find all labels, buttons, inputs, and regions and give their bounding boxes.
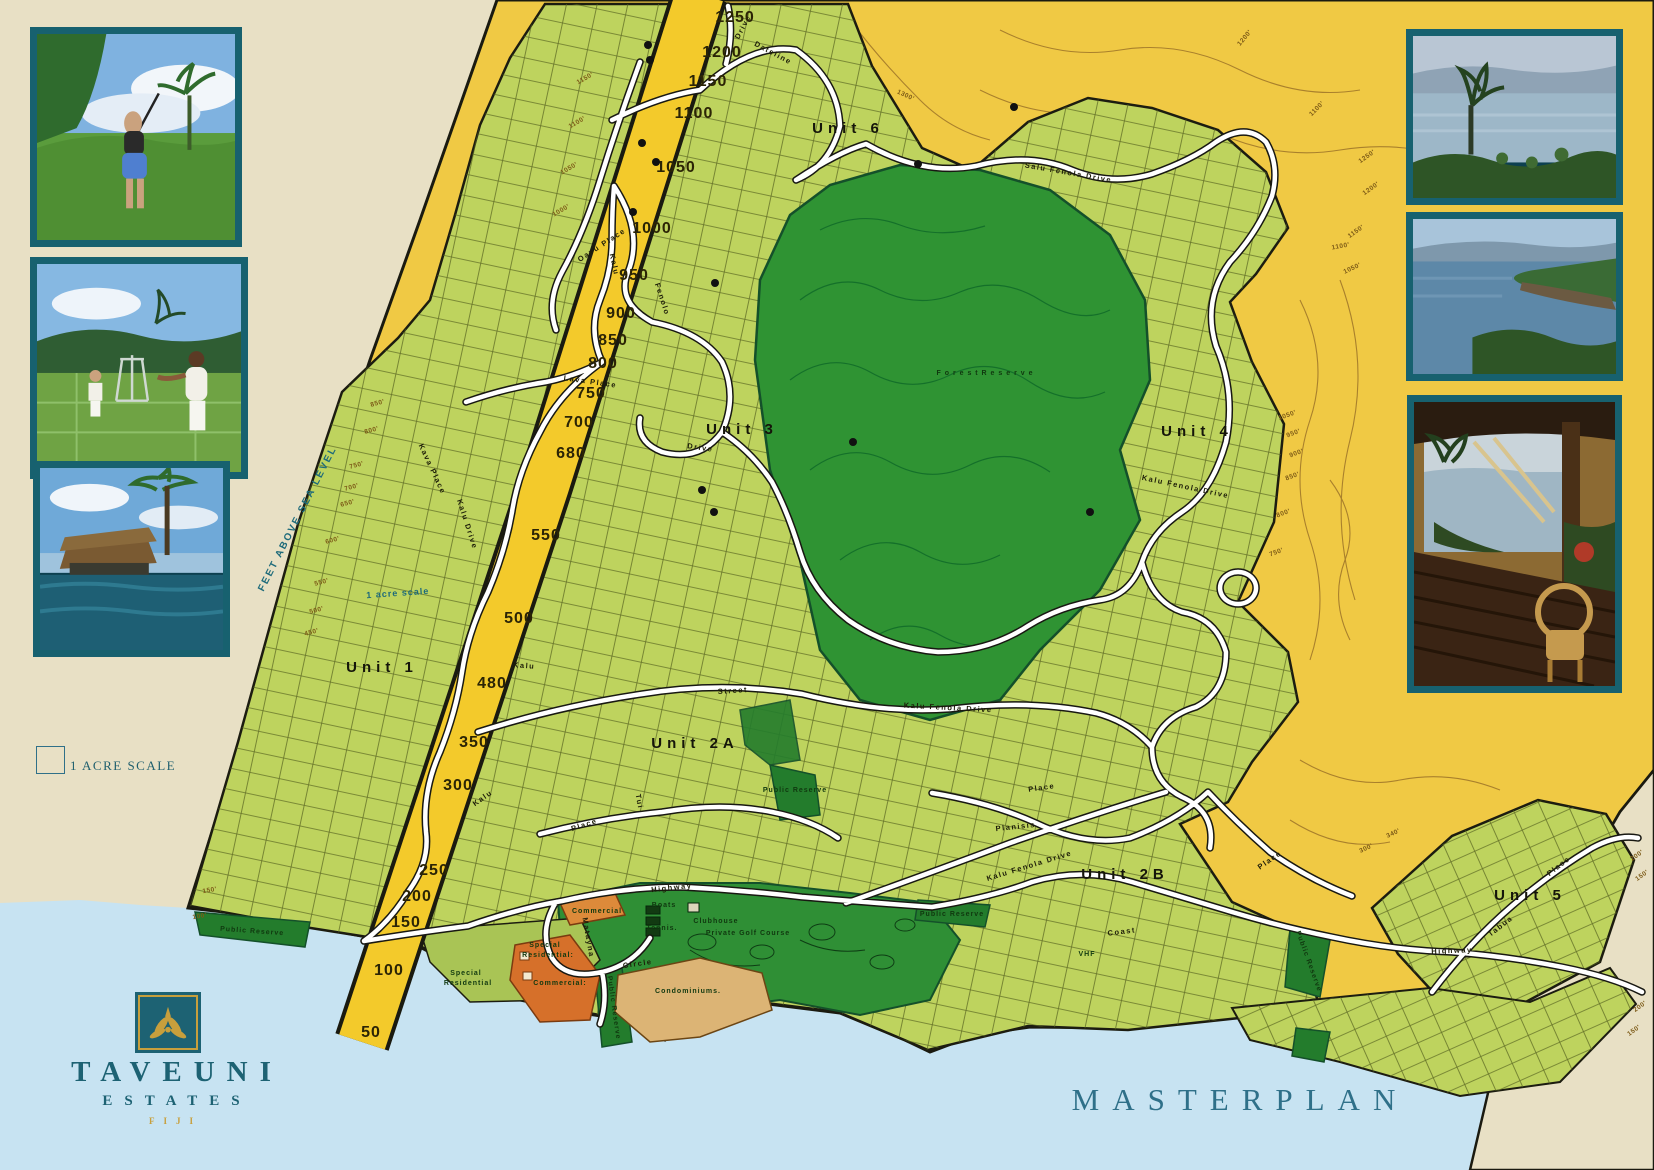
bay-photo	[1406, 212, 1623, 381]
svg-text:Unit 6: Unit 6	[812, 120, 884, 137]
svg-text:Unit 2A: Unit 2A	[651, 735, 739, 752]
svg-text:50: 50	[361, 1024, 381, 1041]
svg-text:Residential: Residential	[444, 980, 492, 987]
svg-text:800: 800	[588, 355, 618, 372]
svg-text:480: 480	[477, 675, 507, 692]
svg-text:Unit 3: Unit 3	[706, 421, 778, 438]
svg-text:250: 250	[419, 862, 449, 879]
svg-text:300: 300	[443, 777, 473, 794]
tennis-photo	[30, 257, 248, 479]
svg-text:Boats: Boats	[652, 902, 676, 909]
svg-text:Special: Special	[529, 942, 561, 949]
svg-text:Special: Special	[450, 970, 482, 977]
svg-text:150: 150	[391, 914, 421, 931]
svg-text:1150: 1150	[689, 73, 728, 90]
svg-text:Public Reserve: Public Reserve	[920, 911, 984, 918]
svg-text:Unit 4: Unit 4	[1161, 423, 1233, 440]
svg-text:Residential:: Residential:	[522, 952, 574, 959]
ocean-palm-photo	[1406, 29, 1623, 205]
veranda-photo	[1407, 395, 1622, 693]
golf-photo	[30, 27, 242, 247]
masterplan-poster: Unit 1Unit 2AUnit 2BUnit 3Unit 4Unit 5Un…	[0, 0, 1654, 1170]
svg-text:200: 200	[402, 888, 432, 905]
svg-text:Unit 1: Unit 1	[346, 659, 418, 676]
svg-text:Unit 5: Unit 5	[1494, 887, 1566, 904]
svg-text:Commercial: Commercial	[572, 908, 622, 915]
svg-text:100: 100	[374, 962, 404, 979]
brand-subname: ESTATES	[40, 1093, 314, 1110]
svg-text:Unit 2B: Unit 2B	[1081, 866, 1169, 883]
svg-text:Clubhouse: Clubhouse	[693, 918, 738, 925]
pool-photo	[33, 461, 230, 657]
brand-country: FIJI	[40, 1116, 311, 1126]
acre-scale-swatch	[36, 746, 65, 774]
svg-text:Kalu: Kalu	[513, 660, 536, 671]
svg-text:1000: 1000	[632, 220, 672, 237]
palm-emblem-icon	[147, 1002, 189, 1044]
svg-text:680: 680	[556, 445, 586, 462]
svg-text:F o r e s t R e s e r v e: F o r e s t R e s e r v e	[937, 370, 1034, 377]
brand-wordmark: TAVEUNI ESTATES FIJI	[40, 1056, 302, 1126]
svg-text:1200: 1200	[702, 44, 742, 61]
svg-text:350: 350	[459, 734, 489, 751]
page-title: MASTERPLAN	[1020, 1082, 1460, 1118]
svg-text:Public Reserve: Public Reserve	[763, 787, 827, 794]
svg-text:1250: 1250	[715, 9, 755, 26]
acre-scale-label: 1 ACRE SCALE	[70, 758, 176, 774]
svg-text:500: 500	[504, 610, 534, 627]
svg-text:1050: 1050	[656, 159, 696, 176]
brand-name: TAVEUNI	[40, 1056, 314, 1089]
svg-text:Tennis.: Tennis.	[647, 925, 678, 932]
svg-text:1100: 1100	[675, 105, 714, 122]
svg-text:Highway: Highway	[1431, 945, 1473, 955]
svg-text:Commercial:: Commercial:	[533, 980, 586, 987]
svg-text:VHF: VHF	[1079, 951, 1096, 958]
svg-text:950: 950	[619, 267, 649, 284]
svg-text:550: 550	[531, 527, 561, 544]
svg-text:750: 750	[576, 385, 606, 402]
svg-text:Condominiums.: Condominiums.	[655, 988, 721, 995]
svg-text:900: 900	[606, 305, 636, 322]
svg-text:850: 850	[598, 332, 628, 349]
svg-text:700: 700	[564, 414, 594, 431]
brand-logo	[138, 995, 198, 1050]
svg-text:Private Golf Course: Private Golf Course	[706, 930, 790, 937]
